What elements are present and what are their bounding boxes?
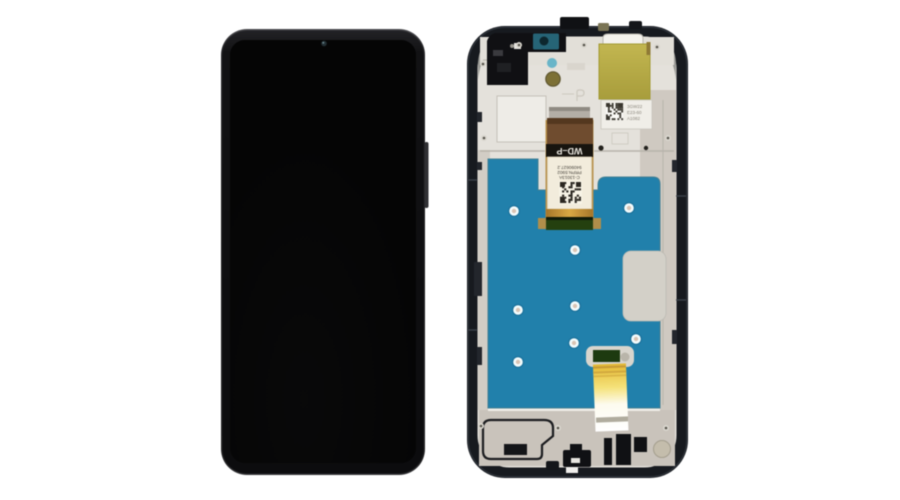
svg-text:E23-60: E23-60 xyxy=(627,110,642,115)
svg-text:94090627.2: 94090627.2 xyxy=(557,165,582,170)
svg-text:A1082: A1082 xyxy=(627,116,641,121)
svg-text:3GW22: 3GW22 xyxy=(627,104,643,109)
svg-text:WD–P: WD–P xyxy=(556,146,582,156)
